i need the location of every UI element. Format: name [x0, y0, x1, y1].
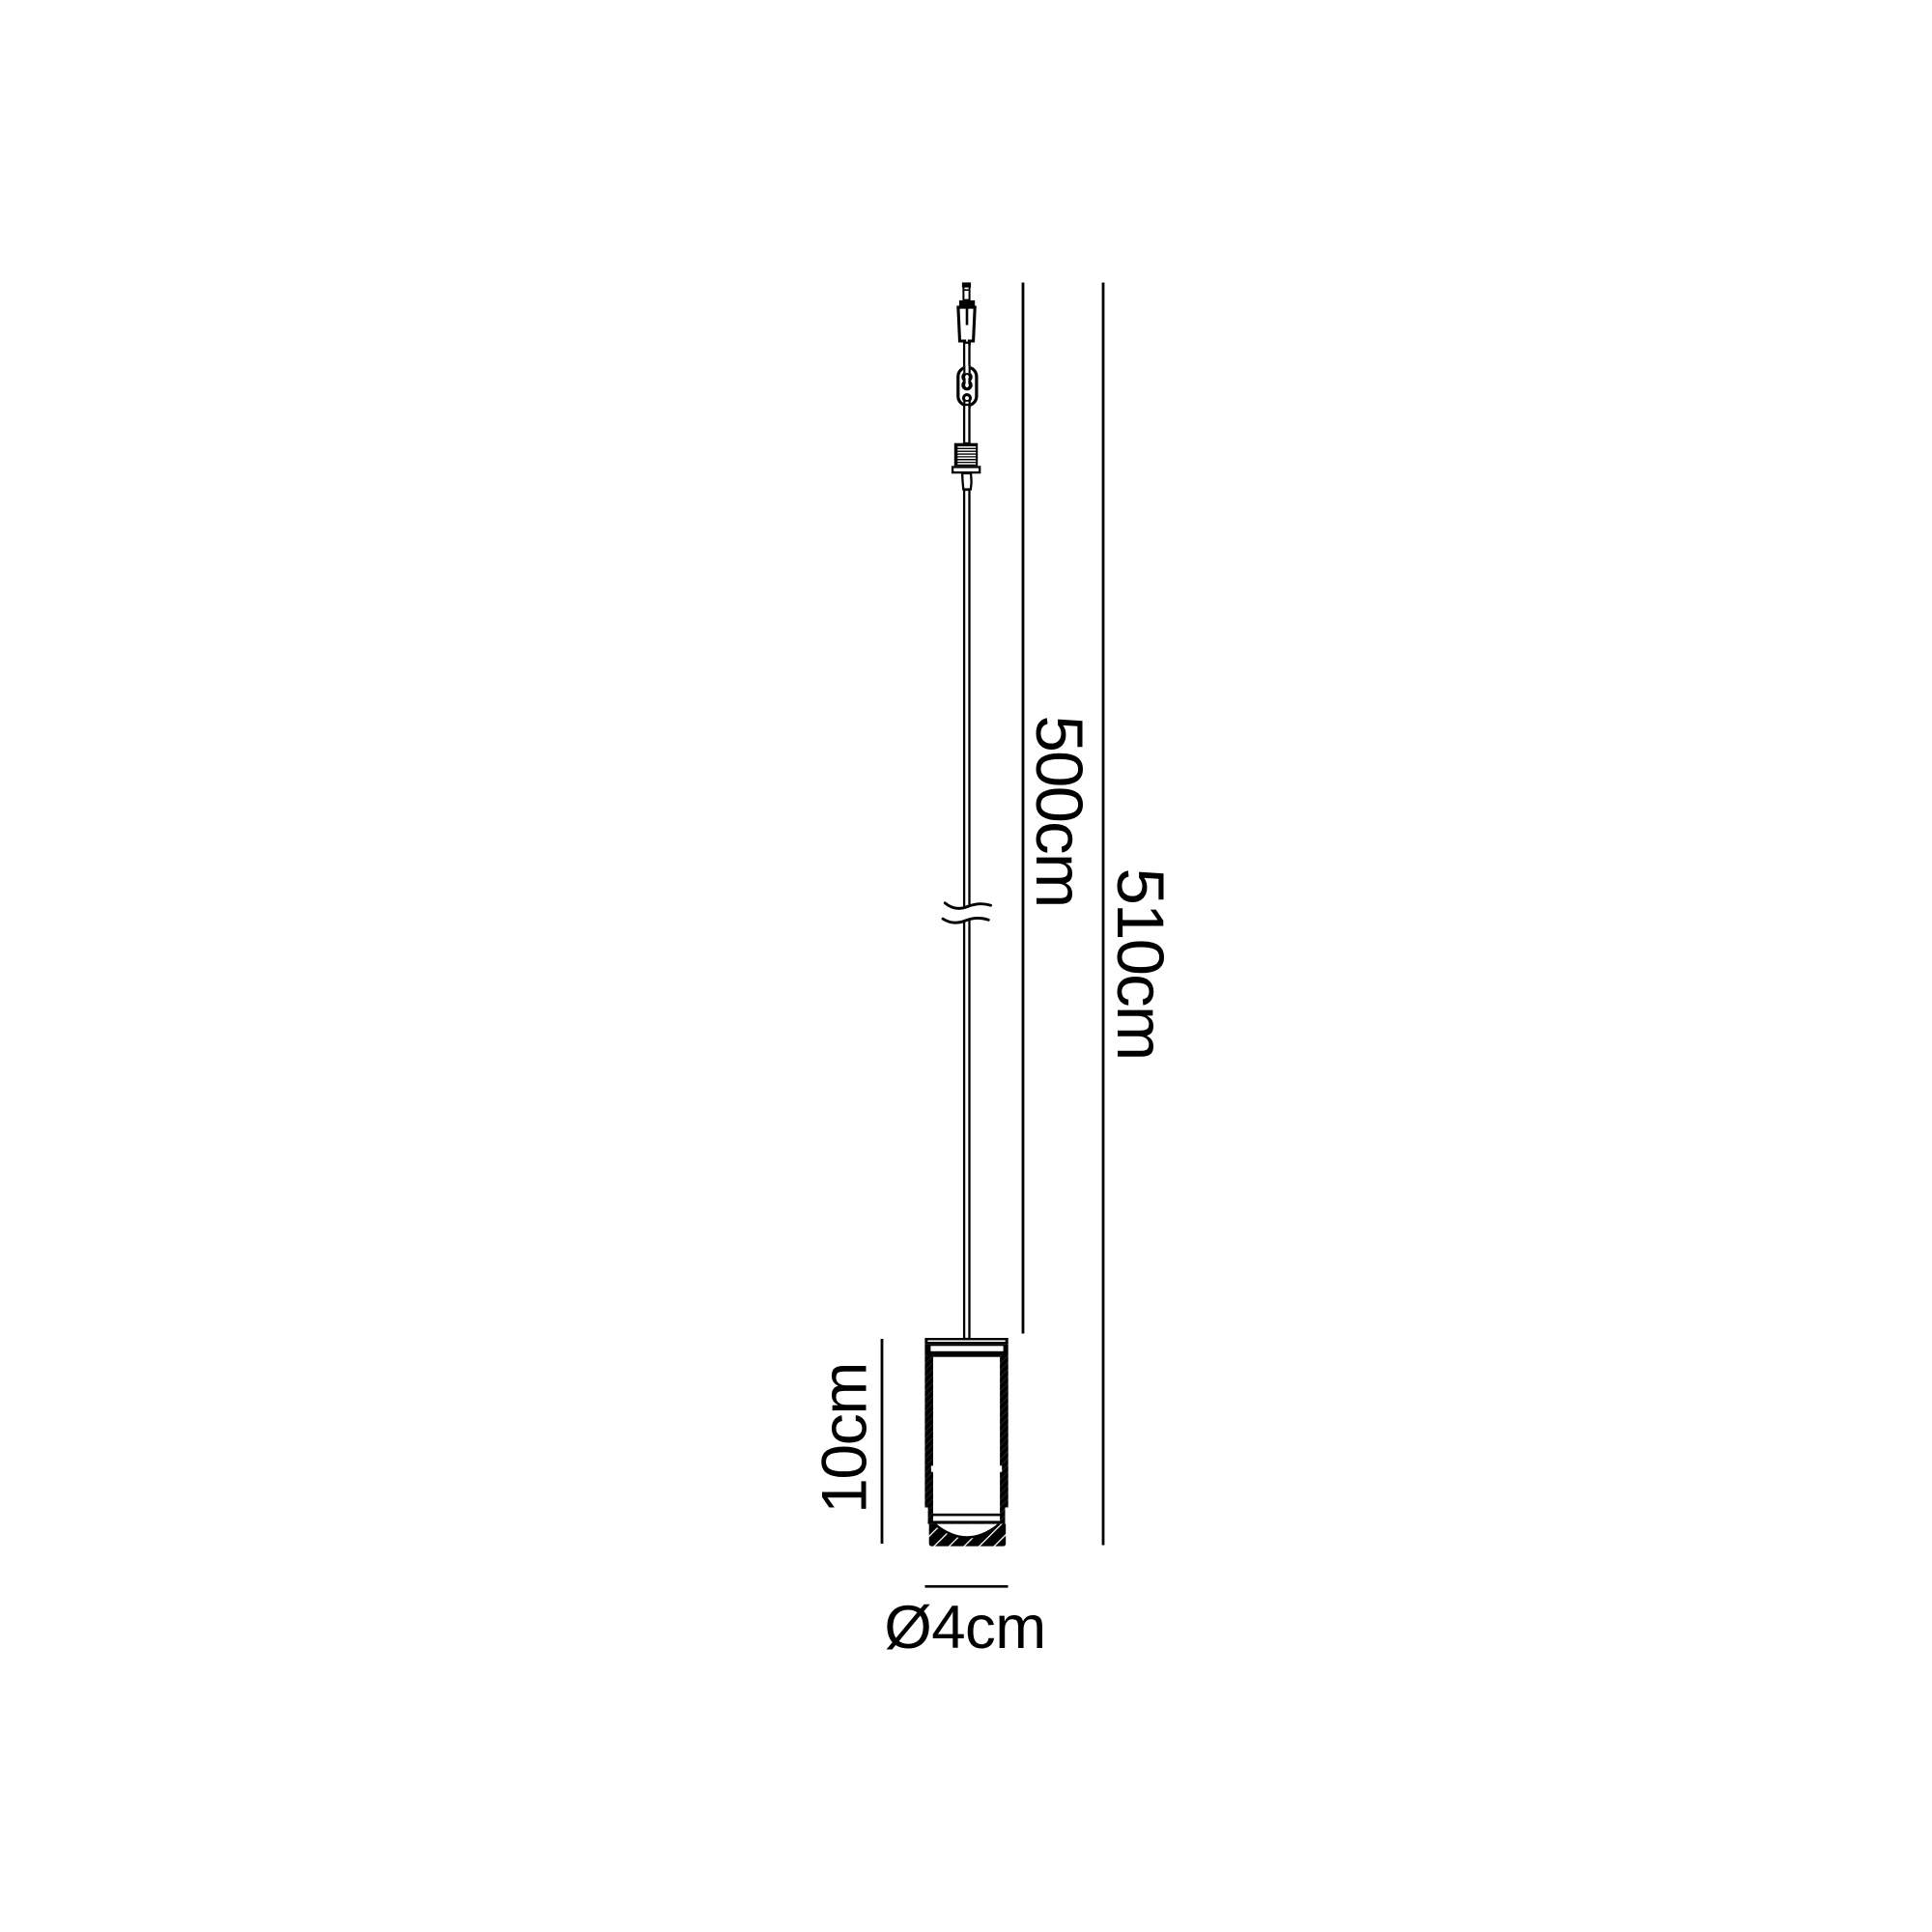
svg-text:510cm: 510cm: [1103, 867, 1178, 1059]
svg-text:500cm: 500cm: [1022, 715, 1096, 906]
svg-text:Ø4cm: Ø4cm: [884, 1594, 1045, 1662]
svg-text:10cm: 10cm: [809, 1363, 880, 1514]
